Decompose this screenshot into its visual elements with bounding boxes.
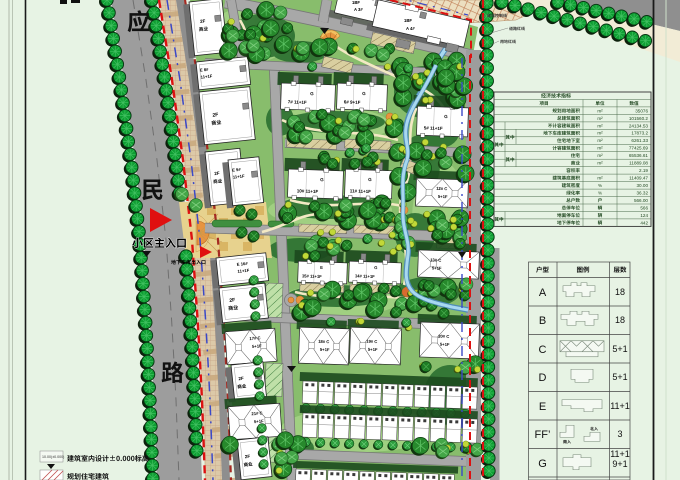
- svg-text:%: %: [598, 183, 602, 188]
- svg-text:24134.53: 24134.53: [629, 123, 649, 128]
- svg-text:77425.69: 77425.69: [629, 146, 649, 151]
- svg-text:2F: 2F: [229, 297, 235, 304]
- svg-text:5+1F: 5+1F: [252, 343, 262, 349]
- svg-text:2F: 2F: [238, 376, 244, 382]
- svg-text:m²: m²: [597, 146, 603, 151]
- svg-text:11889.08: 11889.08: [629, 161, 648, 166]
- svg-text:2.19: 2.19: [639, 168, 648, 173]
- svg-text:35076: 35076: [635, 108, 648, 113]
- svg-text:5+1F: 5+1F: [320, 347, 330, 352]
- svg-text:E 8#: E 8#: [200, 67, 210, 73]
- svg-text:6# 9+1F: 6# 9+1F: [344, 99, 361, 105]
- svg-text:11409.47: 11409.47: [629, 176, 648, 181]
- svg-text:2F: 2F: [212, 112, 218, 119]
- svg-text:15# 11+1F: 15# 11+1F: [302, 273, 323, 279]
- svg-text:18# C: 18# C: [318, 339, 329, 344]
- svg-text:566: 566: [640, 205, 648, 210]
- svg-text:m²: m²: [597, 161, 603, 166]
- svg-text:14# 11+1F: 14# 11+1F: [355, 273, 376, 279]
- svg-text:11+1: 11+1: [610, 449, 630, 459]
- svg-text:13# C: 13# C: [430, 257, 441, 262]
- svg-text:19# C: 19# C: [366, 339, 377, 344]
- svg-text:2F: 2F: [245, 454, 251, 460]
- svg-text:1BF: 1BF: [404, 18, 412, 23]
- svg-text:A 3#: A 3#: [354, 7, 363, 12]
- svg-text:1BF: 1BF: [352, 0, 360, 5]
- svg-text:%: %: [598, 191, 602, 196]
- svg-text:5+1F: 5+1F: [440, 342, 450, 347]
- svg-text:5+1F: 5+1F: [438, 194, 448, 199]
- svg-text:442: 442: [640, 220, 648, 225]
- svg-text:m²: m²: [597, 138, 603, 143]
- svg-text:m²: m²: [597, 108, 603, 113]
- svg-text:11+1: 11+1: [610, 401, 630, 411]
- svg-text:36.32: 36.32: [637, 191, 649, 196]
- svg-text:2F: 2F: [200, 18, 206, 24]
- svg-text:E: E: [320, 265, 323, 270]
- svg-text:3: 3: [617, 429, 622, 439]
- svg-text:10.00(±0.000): 10.00(±0.000): [42, 455, 64, 459]
- svg-text:m²: m²: [597, 131, 603, 136]
- svg-text:17873.2: 17873.2: [631, 131, 648, 136]
- svg-text:566.00: 566.00: [634, 198, 648, 203]
- svg-text:12# C: 12# C: [436, 186, 447, 191]
- svg-text:A: A: [539, 287, 547, 299]
- svg-text:G: G: [374, 265, 377, 270]
- svg-text:18: 18: [615, 287, 625, 297]
- svg-text:m²: m²: [597, 176, 603, 181]
- svg-text:5+1F: 5+1F: [368, 347, 378, 352]
- svg-text:A 4#: A 4#: [406, 26, 415, 31]
- svg-text:m²: m²: [597, 116, 603, 121]
- svg-text:m²: m²: [597, 123, 603, 128]
- svg-text:5# 11+1F: 5# 11+1F: [424, 125, 443, 131]
- svg-text:m²: m²: [597, 153, 603, 158]
- svg-text:D: D: [539, 372, 547, 384]
- svg-text:2F: 2F: [214, 171, 220, 177]
- svg-text:5+1F: 5+1F: [254, 418, 264, 424]
- svg-text:FF’: FF’: [535, 429, 551, 441]
- svg-text:5+1F: 5+1F: [432, 265, 442, 270]
- svg-text:124: 124: [640, 213, 648, 218]
- svg-text:E: E: [539, 401, 546, 413]
- svg-text:B: B: [539, 315, 546, 327]
- svg-text:20# C: 20# C: [438, 334, 449, 339]
- svg-text:65536.61: 65536.61: [629, 153, 649, 158]
- svg-text:11# 11+1F: 11# 11+1F: [350, 188, 372, 194]
- svg-text:5+1: 5+1: [612, 372, 627, 382]
- svg-text:9+1: 9+1: [612, 459, 627, 469]
- svg-text:10# 11+1F: 10# 11+1F: [297, 188, 319, 194]
- svg-text:101560.2: 101560.2: [629, 116, 649, 121]
- svg-text:5+1: 5+1: [612, 344, 627, 354]
- svg-text:E 9#: E 9#: [232, 167, 242, 173]
- svg-text:6261.33: 6261.33: [631, 138, 648, 143]
- svg-text:30.00: 30.00: [637, 183, 649, 188]
- svg-text:7# 11+1F: 7# 11+1F: [288, 99, 307, 105]
- svg-text:17# C: 17# C: [249, 335, 261, 341]
- svg-text:18: 18: [615, 315, 625, 325]
- svg-text:21# C: 21# C: [251, 410, 263, 416]
- svg-text:G: G: [538, 458, 547, 470]
- svg-text:C: C: [539, 344, 547, 356]
